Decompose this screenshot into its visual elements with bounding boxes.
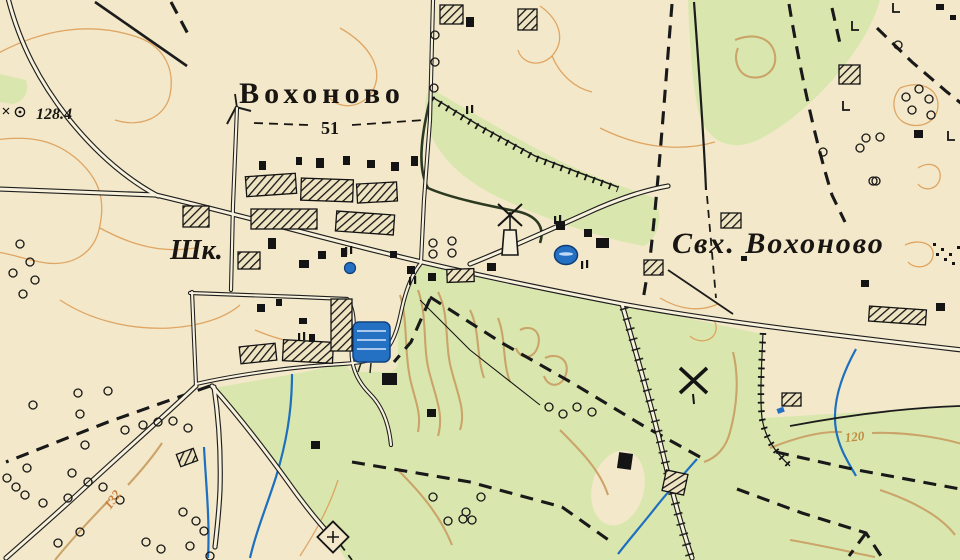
building-solid [950, 15, 956, 20]
building-solid [316, 158, 324, 168]
building-solid [367, 160, 375, 168]
building-solid [257, 304, 265, 312]
building-hatched [440, 5, 463, 24]
building-hatched [662, 470, 688, 495]
building-hatched [238, 252, 260, 269]
gate-post [414, 276, 416, 284]
building-solid [407, 266, 415, 274]
gate-post [303, 332, 305, 340]
gate-post [466, 106, 468, 114]
gate-post [409, 277, 411, 285]
dot-mark [933, 243, 936, 246]
elevation-label: 128.4 [36, 106, 72, 123]
building-solid [428, 273, 436, 281]
building-solid [427, 409, 436, 417]
building-solid [276, 299, 282, 306]
building-solid [259, 161, 266, 170]
building-hatched [644, 260, 663, 275]
gate-post [345, 247, 347, 255]
building-solid [936, 4, 944, 10]
building-hatched [282, 340, 333, 364]
building-solid [268, 238, 276, 249]
building-hatched [447, 269, 474, 283]
village-name-label: Вохоново [239, 77, 405, 110]
building-hatched [183, 206, 209, 227]
building-hatched [357, 182, 398, 203]
building-solid [936, 303, 945, 311]
gate-post [471, 105, 473, 113]
gate-post [586, 260, 588, 268]
building-hatched [239, 343, 277, 364]
building-solid [318, 251, 326, 259]
building-hatched [251, 209, 317, 229]
gate-post [559, 215, 561, 223]
building-hatched [331, 299, 352, 351]
gate-post [298, 333, 300, 341]
gate-post [581, 261, 583, 269]
building-solid [311, 441, 320, 449]
building-solid [617, 452, 633, 470]
building-hatched [782, 393, 801, 406]
building-solid [296, 157, 302, 165]
school-label: Шк. [169, 235, 223, 266]
building-solid [382, 373, 397, 385]
building-solid [309, 334, 315, 342]
dot-mark [944, 258, 947, 261]
contour-label-120: 120 [844, 428, 865, 445]
building-solid [343, 156, 350, 165]
building-hatched [518, 9, 537, 30]
building-hatched [839, 65, 860, 84]
building-solid [596, 238, 609, 248]
gate-post [554, 216, 556, 224]
building-solid [299, 318, 307, 324]
building-hatched [721, 213, 741, 228]
building-hatched [301, 178, 354, 202]
dot-mark [949, 253, 952, 256]
building-solid [391, 162, 399, 171]
household-count-label: 51 [321, 118, 339, 138]
building-hatched [869, 306, 927, 325]
sovkhoz-label: Свх. Вохоново [672, 227, 885, 260]
dot-mark [941, 248, 944, 251]
building-hatched [245, 173, 296, 196]
topographic-map: Вохоново 51 Свх. Вохоново Шк. 128.4 132 … [0, 0, 960, 560]
building-solid [299, 260, 309, 268]
building-solid [861, 280, 869, 287]
dot-mark [952, 262, 955, 265]
building-solid [390, 251, 397, 258]
map-canvas: Вохоново 51 Свх. Вохоново Шк. 128.4 132 … [0, 0, 960, 560]
building-solid [914, 130, 923, 138]
building-solid [411, 156, 418, 166]
building-solid [487, 263, 496, 271]
gate-post [350, 246, 352, 254]
building-solid [584, 229, 592, 237]
dot-mark [936, 253, 939, 256]
building-solid [466, 17, 474, 27]
building-hatched [335, 211, 394, 235]
